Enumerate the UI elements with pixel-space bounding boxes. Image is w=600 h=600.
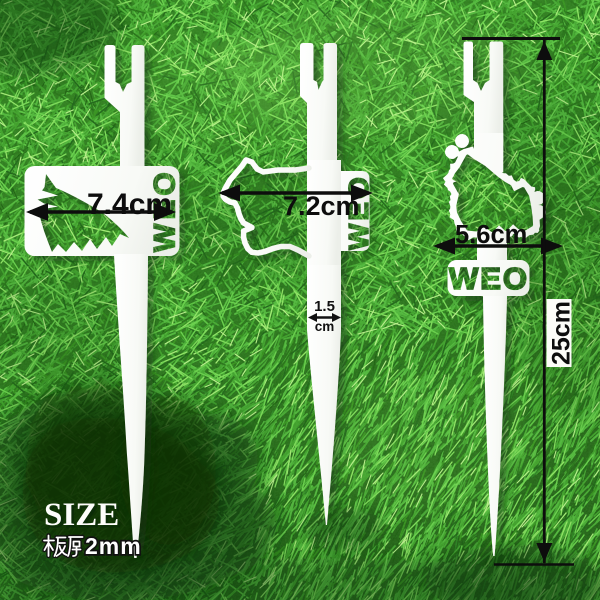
svg-text:2mm: 2mm: [85, 533, 142, 559]
svg-text:5.6cm: 5.6cm: [455, 221, 527, 249]
svg-text:cm: cm: [315, 319, 335, 334]
svg-text:7.4cm: 7.4cm: [87, 188, 172, 221]
svg-text:SIZE: SIZE: [44, 497, 119, 533]
svg-text:1.5: 1.5: [314, 298, 335, 315]
svg-text:7.2cm: 7.2cm: [283, 191, 360, 221]
svg-text:25cm: 25cm: [548, 301, 576, 365]
